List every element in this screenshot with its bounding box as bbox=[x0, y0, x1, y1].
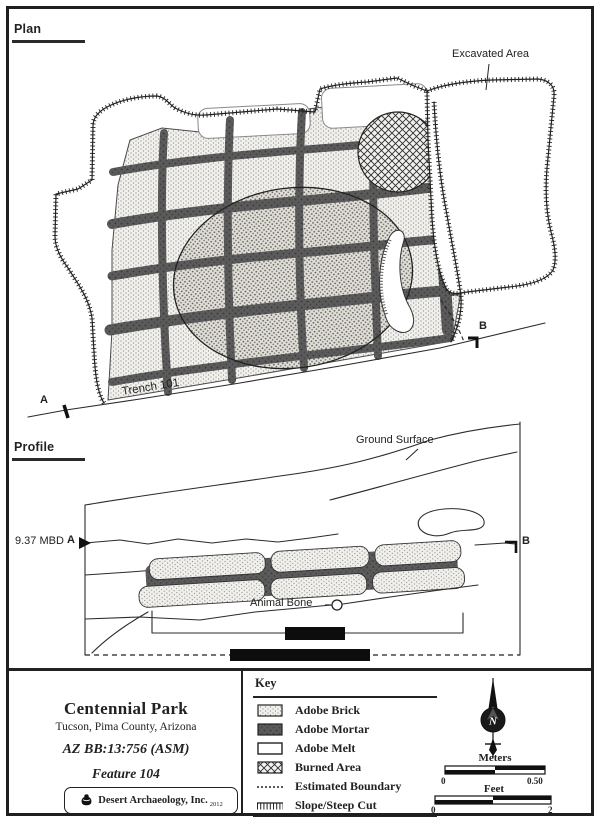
plan-section-label: Plan bbox=[14, 22, 41, 36]
plan-section-rule bbox=[12, 40, 85, 43]
plan-adobe-structure bbox=[108, 83, 460, 400]
animal-bone-label: Animal Bone bbox=[250, 597, 312, 609]
section-b-tick bbox=[468, 338, 477, 348]
archaeology-figure-page: { "colors": { "ink": "#222222", "mortar"… bbox=[0, 0, 600, 822]
plan-marker-b: B bbox=[479, 320, 487, 332]
profile-section-rule bbox=[12, 458, 85, 461]
feet-scale-label: Feet bbox=[436, 783, 552, 795]
plan-marker-a: A bbox=[40, 394, 48, 406]
adobe-melt-patch bbox=[197, 103, 310, 139]
stratum-line bbox=[330, 452, 517, 500]
profile-black-bar bbox=[285, 627, 345, 640]
north-arrow-icon: N bbox=[467, 676, 519, 762]
adobe-mortar-swatch bbox=[257, 723, 283, 736]
key-item-slope-steep-cut: Slope/Steep Cut bbox=[257, 797, 377, 814]
adobe-brick-swatch bbox=[257, 704, 283, 717]
burned-area bbox=[358, 112, 438, 192]
site-number: AZ BB:13:756 (ASM) bbox=[12, 742, 240, 758]
key-item-adobe-melt: Adobe Melt bbox=[257, 740, 355, 757]
site-name: Centennial Park bbox=[12, 699, 240, 719]
feet-scale-end: 2 bbox=[548, 805, 553, 815]
ground-surface-line bbox=[85, 424, 520, 505]
sediment-lens bbox=[418, 509, 484, 536]
estimated-boundary-swatch bbox=[257, 780, 283, 793]
key-rule-top bbox=[253, 696, 437, 698]
key-title: Key bbox=[255, 676, 277, 691]
key-item-adobe-brick: Adobe Brick bbox=[257, 702, 360, 719]
key-item-label: Adobe Melt bbox=[295, 741, 355, 756]
company-logo: Desert Archaeology, Inc. 2012 bbox=[64, 787, 238, 814]
key-rule-bottom bbox=[253, 815, 437, 817]
ground-surface-leader bbox=[406, 449, 418, 460]
adobe-melt-swatch bbox=[257, 742, 283, 755]
key-item-label: Estimated Boundary bbox=[295, 779, 401, 794]
key-item-estimated-boundary: Estimated Boundary bbox=[257, 778, 401, 795]
company-year: 2012 bbox=[210, 802, 223, 808]
section-a-tick bbox=[64, 405, 68, 418]
animal-bone-point bbox=[332, 600, 342, 610]
slope-steep-cut-swatch bbox=[257, 799, 283, 812]
profile-section-label: Profile bbox=[14, 440, 54, 454]
feature-number: Feature 104 bbox=[12, 766, 240, 782]
meters-scale-bar bbox=[444, 765, 546, 775]
site-location: Tucson, Pima County, Arizona bbox=[12, 721, 240, 733]
burned-area-swatch bbox=[257, 761, 283, 774]
caption-divider bbox=[7, 668, 593, 671]
key-item-label: Adobe Mortar bbox=[295, 722, 369, 737]
north-letter: N bbox=[488, 716, 498, 728]
profile-drawing bbox=[79, 422, 520, 661]
profile-marker-a: A bbox=[67, 534, 75, 546]
title-key-divider bbox=[241, 668, 243, 814]
profile-black-bar bbox=[230, 649, 370, 661]
ground-surface-label: Ground Surface bbox=[356, 434, 434, 446]
key-item-burned-area: Burned Area bbox=[257, 759, 361, 776]
profile-marker-b: B bbox=[522, 535, 530, 547]
key-item-label: Burned Area bbox=[295, 760, 361, 775]
pot-icon bbox=[79, 793, 94, 808]
feet-scale-bar bbox=[434, 795, 552, 805]
excavation-drawing bbox=[0, 0, 600, 668]
excavated-area-label: Excavated Area bbox=[452, 48, 529, 60]
key-item-adobe-mortar: Adobe Mortar bbox=[257, 721, 369, 738]
meters-scale-label: Meters bbox=[445, 752, 545, 764]
elevation-label: 9.37 MBD bbox=[15, 535, 64, 547]
stratum-line bbox=[85, 534, 338, 544]
feet-scale-start: 0 bbox=[431, 805, 436, 815]
company-name: Desert Archaeology, Inc. bbox=[98, 795, 207, 806]
key-item-label: Adobe Brick bbox=[295, 703, 360, 718]
key-item-label: Slope/Steep Cut bbox=[295, 798, 377, 813]
